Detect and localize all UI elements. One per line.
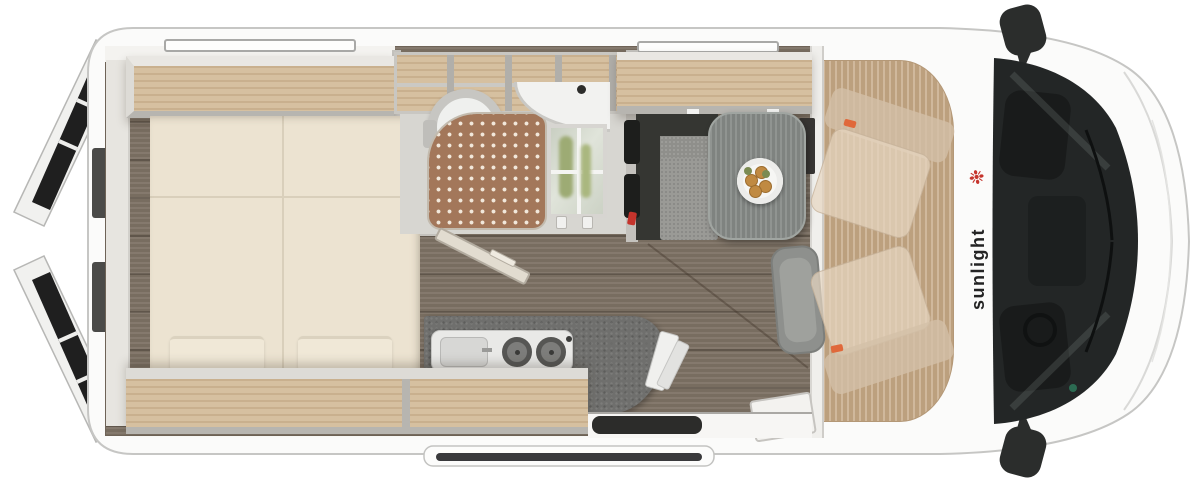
- locker-divider: [609, 55, 616, 111]
- dash-light: [1069, 384, 1077, 392]
- pillow: [298, 336, 392, 372]
- rear-door-lower-window: [32, 272, 110, 416]
- side-mirror-bottom: [997, 418, 1050, 481]
- hood-crease-inner: [1152, 120, 1171, 362]
- dashboard-console: [1028, 196, 1086, 286]
- stove-burner: [536, 337, 566, 367]
- entry-step-well: [592, 416, 702, 434]
- shelf-divider: [402, 379, 410, 427]
- locker-divider: [505, 55, 512, 111]
- overhead-locker-bed-foot: [126, 368, 588, 434]
- overhead-locker-bed-head: [126, 56, 394, 118]
- pillow: [170, 336, 264, 372]
- transverse-bed: [150, 116, 420, 372]
- garnish: [744, 167, 752, 175]
- dashboard-shape: [998, 301, 1073, 393]
- stove-burner: [502, 337, 532, 367]
- cabinet-latch: [582, 216, 593, 229]
- cabinet-latch: [556, 216, 567, 229]
- b-pillar: [810, 46, 824, 438]
- stove-knob: [566, 336, 572, 342]
- shower-mat: [427, 112, 547, 230]
- overhead-locker-dinette: [617, 52, 812, 114]
- wiper: [1086, 130, 1112, 240]
- glass-cabinet: [547, 124, 607, 218]
- wiper: [1086, 242, 1112, 352]
- headrest: [624, 120, 640, 164]
- roof-window-strip-rear: [164, 39, 356, 52]
- dashboard-shape: [998, 89, 1073, 181]
- rear-door-upper-window: [32, 66, 110, 210]
- camper-floorplan: ❉ sunlight: [0, 0, 1200, 481]
- hood-crease: [1124, 72, 1172, 410]
- glass-reflection: [1012, 314, 1108, 408]
- stove-sink-unit: [431, 330, 573, 372]
- cabinet-mullion: [551, 170, 603, 174]
- glass-reflection: [1012, 74, 1108, 168]
- exterior-step: [424, 446, 714, 466]
- side-mirror-top: [997, 1, 1050, 64]
- steering-wheel: [1025, 315, 1055, 345]
- garnish: [762, 170, 770, 178]
- kitchen-sink: [440, 337, 488, 367]
- brand-logo-text: sunlight: [968, 184, 990, 310]
- dinner-plate: [737, 158, 783, 204]
- food: [749, 185, 762, 198]
